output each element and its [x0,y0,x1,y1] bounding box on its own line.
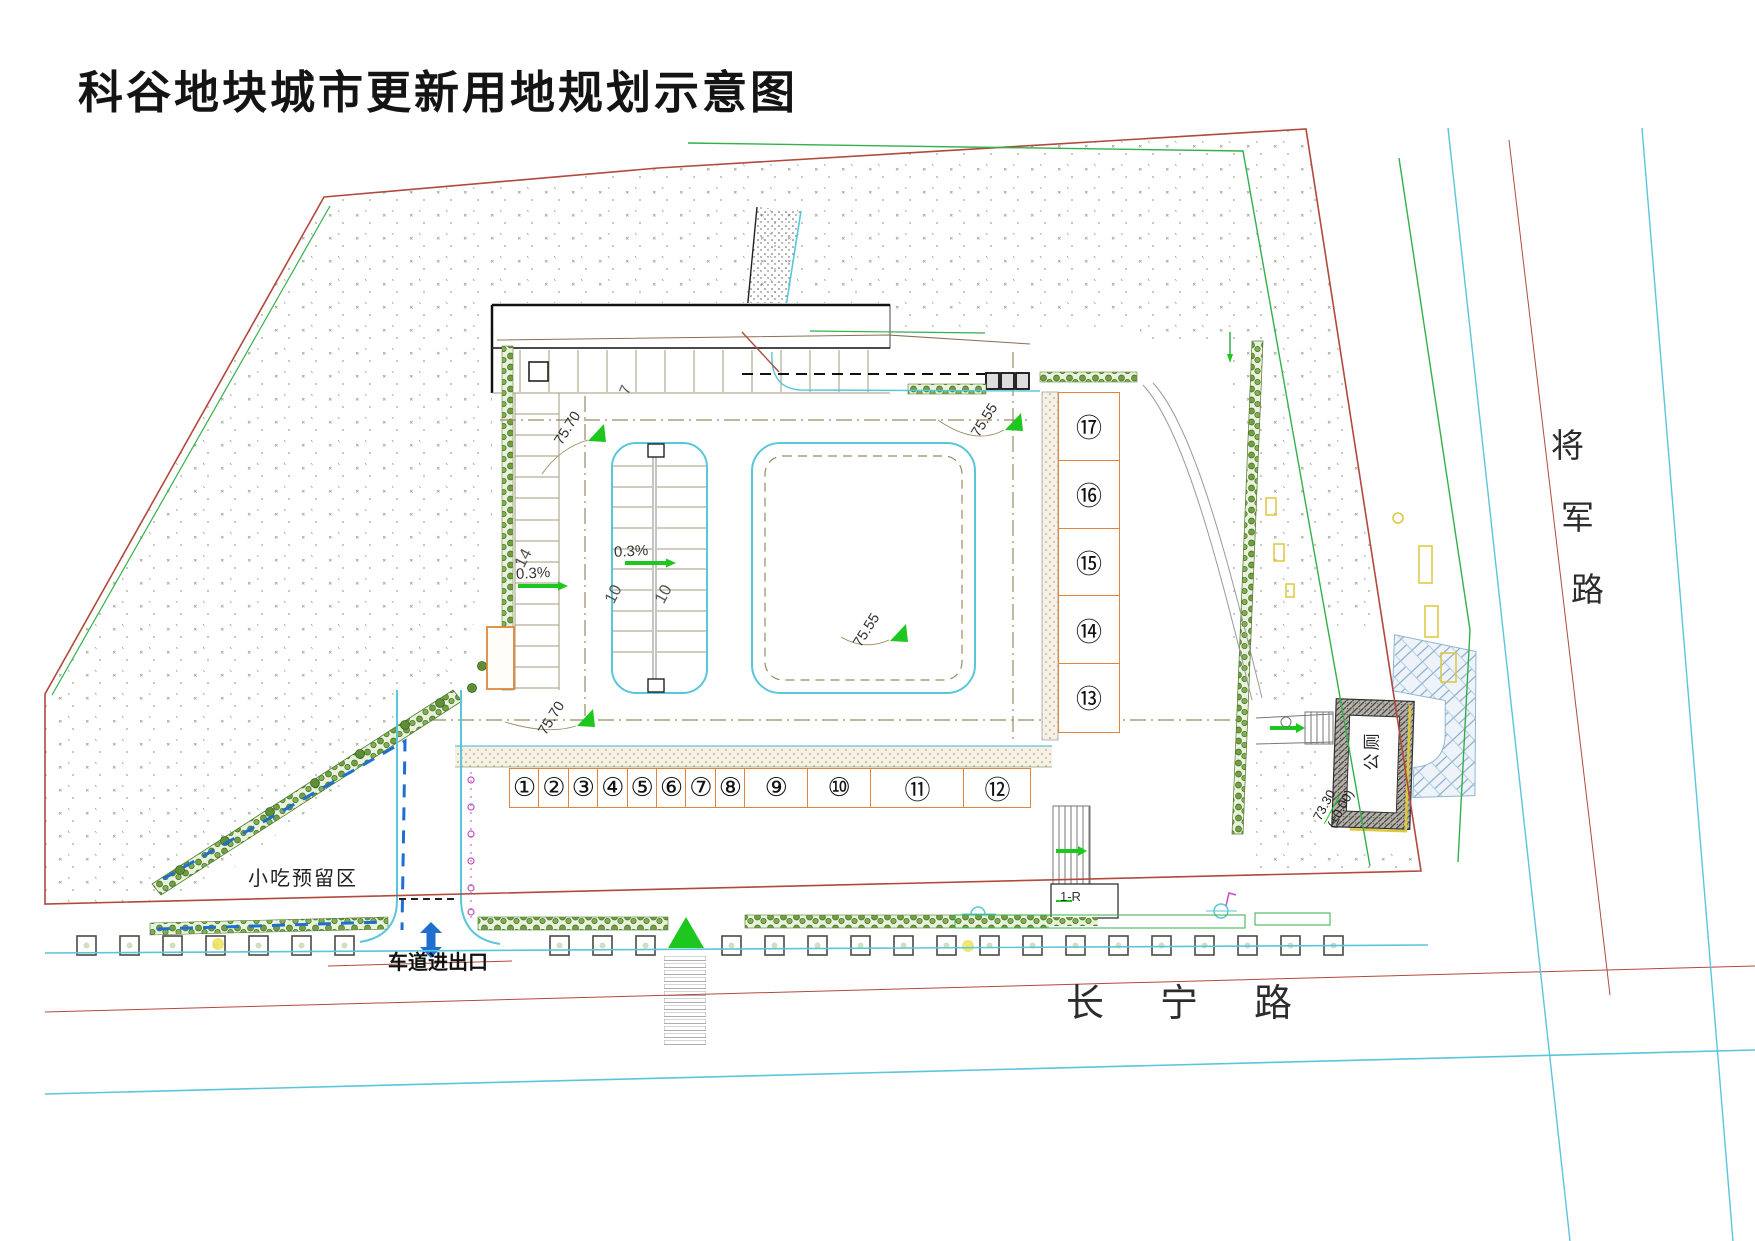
unit-14: ⑭ [1058,595,1120,664]
building-1r-label: 1-R [1060,889,1081,904]
driveway-entrance-label: 车道进出口 [388,946,488,975]
site-plan-page: 科谷地块城市更新用地规划示意图 ① ② ③ ④ ⑤ ⑥ ⑦ ⑧ ⑨ ⑩ ⑪ ⑫ … [0,0,1755,1241]
jiangjun-road-char-2: 军 [1561,491,1594,539]
unit-4: ④ [597,768,628,808]
unit-10: ⑩ [807,768,872,808]
jiangjun-road-char-1: 将 [1551,419,1584,467]
slope-center: 0.3% [614,542,649,561]
parked-cars [986,373,1029,389]
unit-7: ⑦ [685,768,716,808]
unit-11: ⑪ [870,768,965,808]
unit-6: ⑥ [656,768,687,808]
kiosk-box [487,627,514,689]
snack-area-label: 小吃预留区 [248,862,358,891]
hedge-north-1 [908,384,986,394]
unit-15: ⑮ [1058,528,1120,597]
unit-13: ⑬ [1058,663,1120,732]
crosswalk [664,956,706,1045]
unit-3: ③ [568,768,599,808]
changning-road-label: 长宁路 [1066,972,1348,1027]
unit-16: ⑯ [1058,460,1120,529]
column-footing [529,362,548,381]
unit-1: ① [509,768,540,808]
unit-9: ⑨ [744,768,808,808]
shop-units-column: ⑰ ⑯ ⑮ ⑭ ⑬ [1058,392,1120,731]
page-title: 科谷地块城市更新用地规划示意图 [78,56,798,121]
unit-5: ⑤ [627,768,658,808]
jiangjun-road-char-3: 路 [1571,563,1604,611]
shop-units-row: ① ② ③ ④ ⑤ ⑥ ⑦ ⑧ ⑨ ⑩ ⑪ ⑫ [509,768,1030,808]
unit-8: ⑧ [715,768,746,808]
hedge-north-2 [1040,372,1137,382]
unit-12: ⑫ [963,768,1031,808]
staircase [1053,806,1090,884]
public-toilet-label: 公厕 [1358,731,1383,771]
east-road-east-edge [1642,128,1733,1241]
unit-2: ② [538,768,569,808]
unit-17: ⑰ [1058,392,1120,461]
